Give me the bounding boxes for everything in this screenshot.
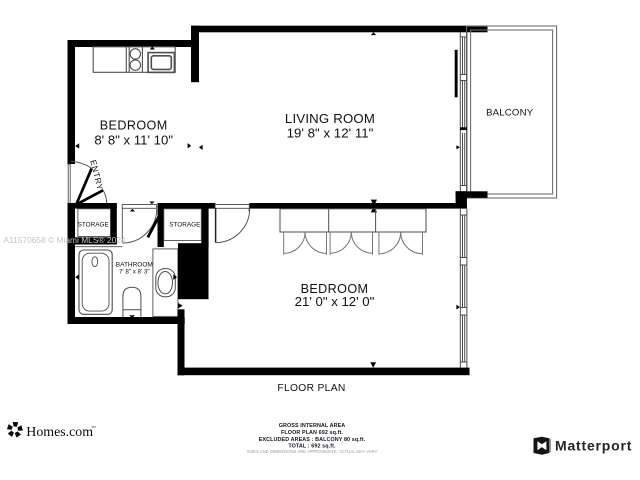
- svg-text:BALCONY: BALCONY: [486, 108, 534, 119]
- svg-text:FLOOR PLAN: FLOOR PLAN: [277, 383, 345, 394]
- svg-text:FLOOR PLAN 692 sq.ft.: FLOOR PLAN 692 sq.ft.: [281, 430, 343, 436]
- svg-text:7' 8" x 8' 3": 7' 8" x 8' 3": [119, 269, 150, 276]
- svg-text:8' 8" x 11' 10": 8' 8" x 11' 10": [94, 132, 173, 147]
- svg-text:21' 0" x 12' 0": 21' 0" x 12' 0": [295, 294, 375, 309]
- svg-text:STORAGE: STORAGE: [78, 222, 109, 229]
- svg-text:BEDROOM: BEDROOM: [100, 119, 168, 133]
- svg-text:™: ™: [92, 425, 97, 430]
- svg-text:BATHROOM: BATHROOM: [116, 262, 153, 269]
- svg-text:LIVING ROOM: LIVING ROOM: [285, 111, 375, 126]
- svg-text:A11570658 © Miami MLS® 2024: A11570658 © Miami MLS® 2024: [4, 235, 126, 245]
- svg-text:Homes.com: Homes.com: [26, 425, 93, 440]
- svg-text:SIZES AND DIMENSIONS ARE APPRO: SIZES AND DIMENSIONS ARE APPROXIMATE, AC…: [247, 449, 378, 454]
- svg-text:19' 8" x 12' 11": 19' 8" x 12' 11": [287, 126, 374, 141]
- svg-text:EXCLUDED AREAS : BALCONY 80 s: EXCLUDED AREAS : BALCONY 80 sq.ft.: [259, 437, 366, 443]
- svg-text:STORAGE: STORAGE: [169, 222, 200, 229]
- svg-text:Matterport: Matterport: [555, 438, 632, 454]
- svg-text:GROSS INTERNAL AREA: GROSS INTERNAL AREA: [279, 423, 346, 429]
